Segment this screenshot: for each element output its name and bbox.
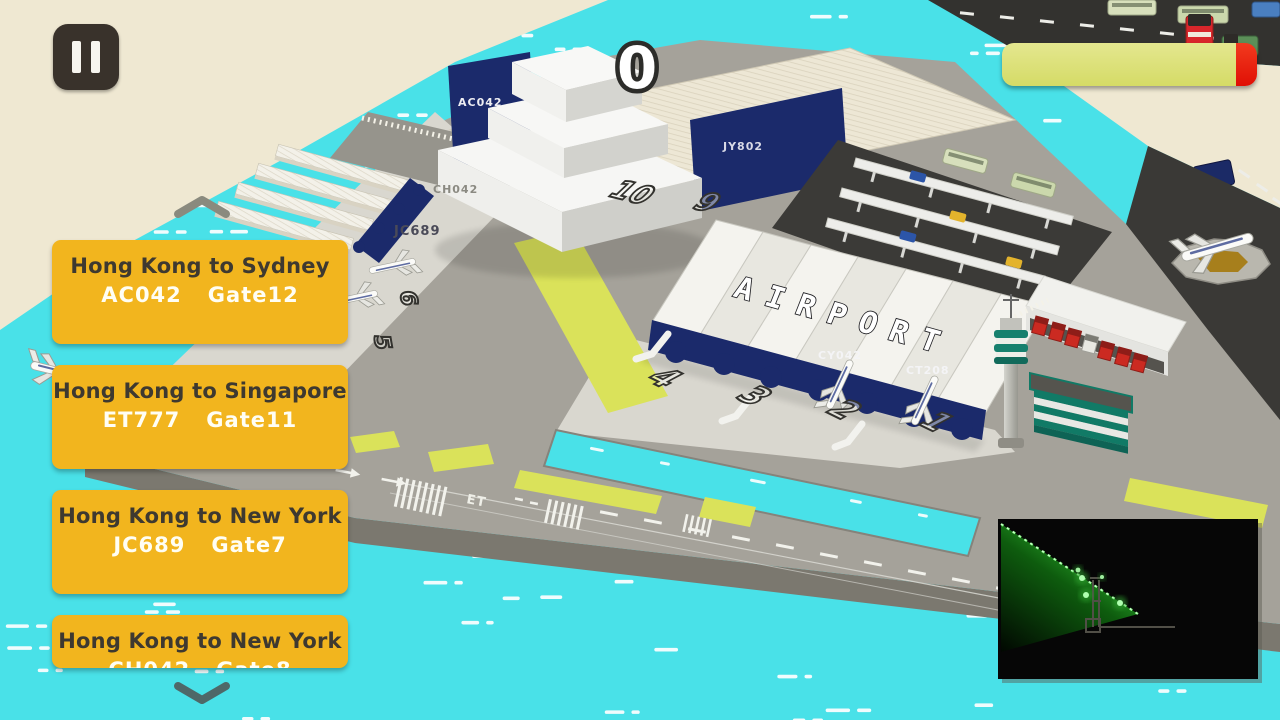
flight-card[interactable]: Hong Kong to New York CH042 Gate8 xyxy=(52,615,348,668)
flight-route: Hong Kong to Sydney xyxy=(52,254,348,278)
pause-icon xyxy=(91,41,100,73)
flight-gate: Gate12 xyxy=(208,283,299,307)
radar-map-outline xyxy=(1086,578,1175,632)
flight-gate: Gate11 xyxy=(206,408,297,432)
scroll-down-button[interactable] xyxy=(172,680,236,706)
pause-icon xyxy=(72,41,81,73)
flight-code: CH042 xyxy=(108,658,190,668)
timer-progress-bar xyxy=(1002,43,1257,86)
progress-alert-segment xyxy=(1236,43,1257,86)
flight-route: Hong Kong to Singapore xyxy=(52,379,348,403)
progress-fill xyxy=(1002,43,1236,86)
chevron-down-icon xyxy=(178,686,226,700)
flight-card[interactable]: Hong Kong to Singapore ET777 Gate11 xyxy=(52,365,348,469)
radar-minimap xyxy=(998,519,1258,679)
scroll-up-button[interactable] xyxy=(172,194,236,220)
flight-code: ET777 xyxy=(103,408,181,432)
score-counter: 0 xyxy=(602,26,672,104)
flight-code: AC042 xyxy=(101,283,182,307)
svg-text:AC042: AC042 xyxy=(458,96,503,109)
svg-text:CT208: CT208 xyxy=(906,364,950,377)
radar-sweep xyxy=(1001,524,1138,652)
game-screen: AIRPORT xyxy=(0,0,1280,720)
flight-card[interactable]: Hong Kong to New York JC689 Gate7 xyxy=(52,490,348,594)
pause-button[interactable] xyxy=(53,24,119,90)
flight-card[interactable]: Hong Kong to Sydney AC042 Gate12 xyxy=(52,240,348,344)
flight-gate: Gate7 xyxy=(211,533,286,557)
score-value: 0 xyxy=(617,34,657,102)
flight-route: Hong Kong to New York xyxy=(52,629,348,653)
flight-route: Hong Kong to New York xyxy=(52,504,348,528)
chevron-up-icon xyxy=(178,200,226,214)
flight-code: JC689 xyxy=(113,533,185,557)
svg-text:CH042: CH042 xyxy=(433,183,478,196)
svg-text:CY042: CY042 xyxy=(818,349,862,362)
flight-gate: Gate8 xyxy=(216,658,291,668)
svg-text:JY802: JY802 xyxy=(722,140,763,153)
svg-text:JC689: JC689 xyxy=(393,224,441,239)
flight-card-list: Hong Kong to Sydney AC042 Gate12 Hong Ko… xyxy=(52,240,348,668)
